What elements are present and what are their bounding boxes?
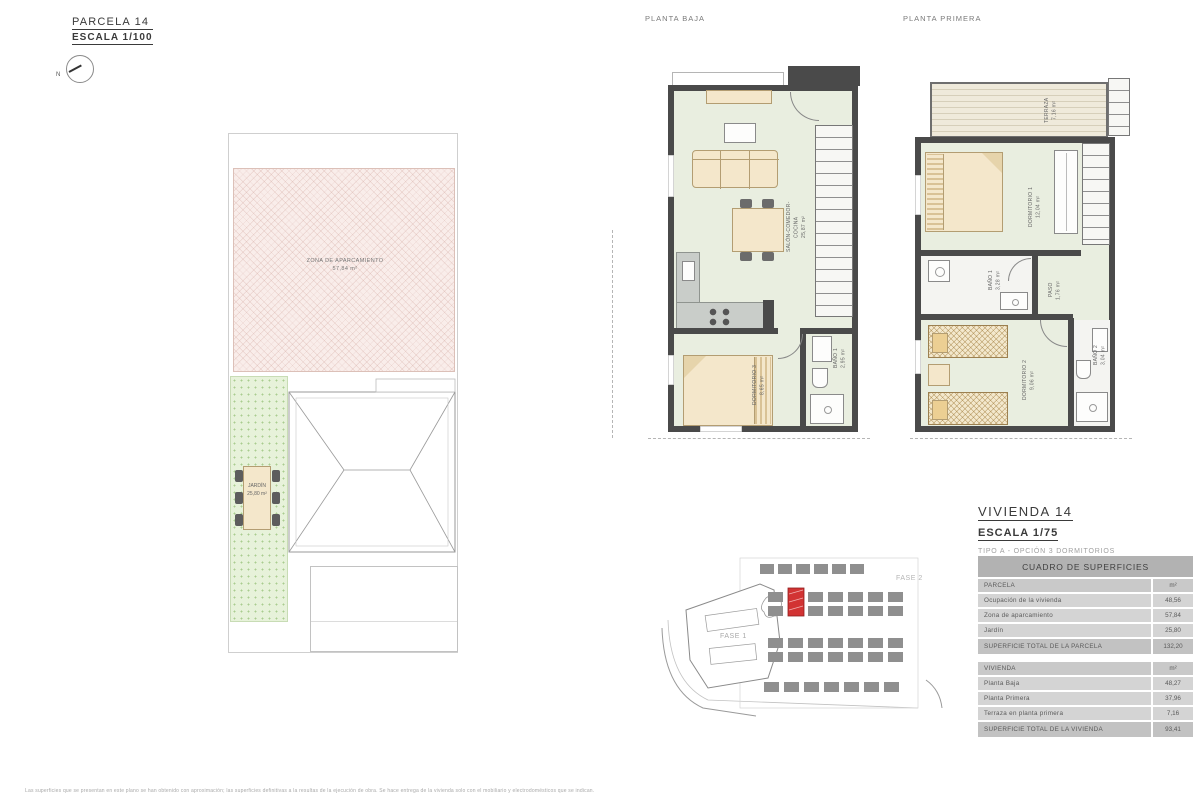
pp-washer <box>928 260 950 282</box>
plan-sheet: PARCELA 14 ESCALA 1/100 N ZONA DE APARCA… <box>0 0 1200 800</box>
garden-table <box>243 466 271 530</box>
parking-area: 57,84 m² <box>234 265 456 273</box>
garden-chair <box>235 470 243 482</box>
pp-dorm2-label: DORMITORIO 2 9,06 m² <box>1022 352 1037 408</box>
surfaces-table-rows: PARCELAm²Ocupación de la vivienda48,56Zo… <box>978 579 1193 737</box>
table-cell-label: Terraza en planta primera <box>978 707 1151 720</box>
table-cell-label: SUPERFICIE TOTAL DE LA PARCELA <box>978 639 1151 654</box>
table-cell-value: 57,84 <box>1153 609 1193 622</box>
pb-sofa <box>692 150 778 188</box>
site-patio <box>310 566 458 652</box>
table-cell-value: 48,27 <box>1153 677 1193 690</box>
north-compass-icon <box>66 55 94 83</box>
vivienda-scale: ESCALA 1/75 <box>978 527 1058 541</box>
garden-area: 25,80 m² <box>241 491 273 499</box>
pb-entry-wall <box>788 66 860 86</box>
table-cell-value: m² <box>1153 579 1193 592</box>
pp-bano1-label: BAÑO 1 3,28 m² <box>988 260 1003 300</box>
table-row: VIVIENDAm² <box>978 662 1193 675</box>
table-cell-value: 25,80 <box>1153 624 1193 637</box>
table-row: Terraza en planta primera7,16 <box>978 707 1193 720</box>
table-row: Jardín25,80 <box>978 624 1193 637</box>
parcel-header: PARCELA 14 ESCALA 1/100 <box>72 16 153 45</box>
planta-primera-title: PLANTA PRIMERA <box>903 14 981 23</box>
surfaces-table-title: CUADRO DE SUPERFICIES <box>978 556 1193 577</box>
pb-dining-table <box>732 208 784 252</box>
vivienda-header: VIVIENDA 14 ESCALA 1/75 TIPO A - OPCIÓN … <box>978 503 1115 555</box>
pb-window <box>668 155 674 197</box>
garden-chair <box>272 514 280 526</box>
table-row: SUPERFICIE TOTAL DE LA VIVIENDA93,41 <box>978 722 1193 737</box>
table-cell-label: Jardín <box>978 624 1151 637</box>
pb-window <box>700 426 742 432</box>
patio-line <box>311 621 457 622</box>
table-cell-label: Zona de aparcamiento <box>978 609 1151 622</box>
pb-chair <box>762 252 774 261</box>
pb-chair <box>740 199 752 208</box>
pp-stairs <box>1082 143 1110 245</box>
table-cell-value: m² <box>1153 662 1193 675</box>
pb-porch <box>672 72 784 86</box>
table-cell-label: VIVIENDA <box>978 662 1151 675</box>
parcel-title: PARCELA 14 <box>72 16 153 30</box>
pp-bano2-toilet <box>1076 360 1091 379</box>
north-label: N <box>56 72 60 78</box>
pp-upper-stairs <box>1108 78 1130 136</box>
vivienda-tipo: TIPO A - OPCIÓN 3 DORMITORIOS <box>978 548 1115 555</box>
pb-shower <box>810 394 844 424</box>
table-cell-value: 7,16 <box>1153 707 1193 720</box>
boundary-dash <box>648 438 870 439</box>
garden-label: JARDÍN <box>241 483 273 491</box>
pp-terraza-label: TERRAZA 7,16 m² <box>1044 88 1059 132</box>
parcel-scale: ESCALA 1/100 <box>72 32 153 45</box>
pb-window <box>668 355 674 385</box>
table-row: SUPERFICIE TOTAL DE LA PARCELA132,20 <box>978 639 1193 654</box>
pb-chair <box>762 199 774 208</box>
pp-paso-label: PASO 1,76 m² <box>1048 272 1063 308</box>
pp-nightstand <box>928 364 950 386</box>
pb-bano1-label: BAÑO 1 2,95 m² <box>833 338 848 378</box>
pp-shower-tray <box>1000 292 1028 310</box>
pp-bed-double <box>925 152 1003 232</box>
table-cell-label: SUPERFICIE TOTAL DE LA VIVIENDA <box>978 722 1151 737</box>
pb-toilet <box>812 368 828 388</box>
table-row: Zona de aparcamiento57,84 <box>978 609 1193 622</box>
garden-chair <box>272 470 280 482</box>
pb-kitchen-sink <box>682 261 695 281</box>
surfaces-table: CUADRO DE SUPERFICIES PARCELAm²Ocupación… <box>978 556 1193 737</box>
table-row: Ocupación de la vivienda48,56 <box>978 594 1193 607</box>
table-row: Planta Primera37,96 <box>978 692 1193 705</box>
pb-kitchen-wall-stub <box>763 300 774 330</box>
garden-chair <box>235 514 243 526</box>
table-cell-label: Planta Baja <box>978 677 1151 690</box>
roof-plan <box>288 378 456 566</box>
pb-sideboard <box>706 90 772 104</box>
table-cell-value: 132,20 <box>1153 639 1193 654</box>
pb-wall-bedroom <box>674 328 778 334</box>
table-cell-value: 37,96 <box>1153 692 1193 705</box>
pp-dorm1-label: DORMITORIO 1 12,04 m² <box>1028 178 1043 236</box>
garden-chair <box>272 492 280 504</box>
table-row: PARCELAm² <box>978 579 1193 592</box>
pp-bed-single-2 <box>928 392 1008 425</box>
fase2-label: FASE 2 <box>896 575 923 582</box>
table-cell-label: Planta Primera <box>978 692 1151 705</box>
parking-zone: ZONA DE APARCAMIENTO 57,84 m² <box>233 168 455 372</box>
pp-window <box>915 340 921 374</box>
location-map: FASE 1 <box>648 550 948 725</box>
pp-window <box>915 175 921 215</box>
pb-bath-sink <box>812 336 832 362</box>
table-cell-label: Ocupación de la vivienda <box>978 594 1151 607</box>
pb-stairs <box>815 125 853 317</box>
boundary-dash <box>612 230 613 438</box>
pp-bano2-shower <box>1076 392 1108 422</box>
footer-disclaimer: Las superficies que se presentan en este… <box>25 788 595 794</box>
pb-stove-icon <box>707 307 733 327</box>
table-row: Planta Baja48,27 <box>978 677 1193 690</box>
pb-dorm3-label: DORMITORIO 3 8,65 m² <box>752 360 767 410</box>
pb-kitchen-counter-bottom <box>676 302 768 330</box>
table-cell-label: PARCELA <box>978 579 1151 592</box>
pb-coffee-table <box>724 123 756 143</box>
pb-chair <box>740 252 752 261</box>
pb-salon-label: SALÓN-COMEDOR-COCINA 25,87 m² <box>786 195 809 259</box>
table-cell-value: 93,41 <box>1153 722 1193 737</box>
boundary-dash <box>910 438 1132 439</box>
pp-bed-single-1 <box>928 325 1008 358</box>
pp-wall-bano1 <box>1032 256 1038 318</box>
pp-terrace <box>930 82 1108 138</box>
pb-wall-bath <box>802 328 854 334</box>
compass-needle-icon <box>69 65 82 73</box>
parking-label: ZONA DE APARCAMIENTO <box>234 257 456 265</box>
planta-baja-title: PLANTA BAJA <box>645 14 705 23</box>
parking-label-block: ZONA DE APARCAMIENTO 57,84 m² <box>234 257 456 274</box>
table-cell-value: 48,56 <box>1153 594 1193 607</box>
pp-bano2-label: BAÑO 2 3,04 m² <box>1093 336 1108 374</box>
fase1-label: FASE 1 <box>720 633 747 640</box>
vivienda-title: VIVIENDA 14 <box>978 504 1073 521</box>
pp-closet <box>1054 150 1078 234</box>
garden-label-block: JARDÍN 25,80 m² <box>241 483 273 498</box>
